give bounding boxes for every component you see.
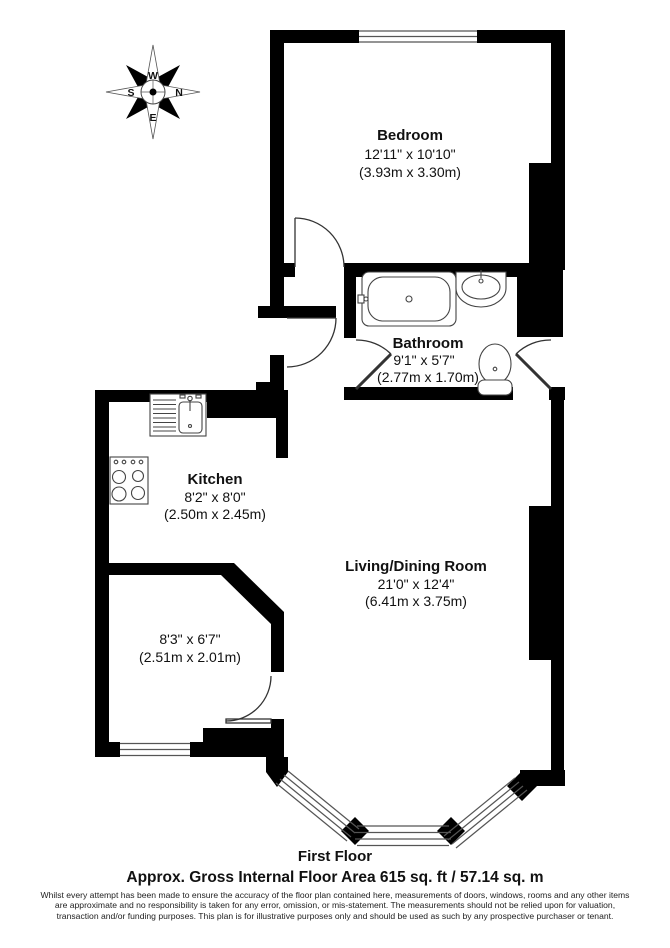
compass-label-west: W xyxy=(148,70,158,82)
chimney-breast xyxy=(529,506,551,660)
svg-text:21'0" x 12'4": 21'0" x 12'4" xyxy=(378,576,455,592)
floorplan-drawing: W N E S Bedroom 12'11" x 10'10" (3.93m x… xyxy=(0,0,670,948)
svg-text:8'2" x 8'0": 8'2" x 8'0" xyxy=(184,489,245,505)
wall xyxy=(95,563,223,575)
bedroom-window xyxy=(359,31,477,42)
wall xyxy=(520,770,565,786)
floor-title: First Floor xyxy=(0,848,670,865)
floorplan-page: W N E S Bedroom 12'11" x 10'10" (3.93m x… xyxy=(0,0,670,948)
svg-text:(2.51m x 2.01m): (2.51m x 2.01m) xyxy=(139,649,241,665)
wall xyxy=(276,390,288,458)
wall xyxy=(551,387,564,772)
kitchen-label: Kitchen 8'2" x 8'0" (2.50m x 2.45m) xyxy=(164,471,266,522)
wall xyxy=(551,30,565,170)
compass-label-south: S xyxy=(127,87,134,99)
bathroom-label: Bathroom 9'1" x 5'7" (2.77m x 1.70m) xyxy=(377,335,479,385)
svg-text:(2.77m x 1.70m): (2.77m x 1.70m) xyxy=(377,369,479,385)
svg-text:9'1" x 5'7": 9'1" x 5'7" xyxy=(393,352,454,368)
svg-text:8'3" x 6'7": 8'3" x 6'7" xyxy=(159,631,220,647)
svg-text:12'11" x 10'10": 12'11" x 10'10" xyxy=(364,146,455,162)
wall xyxy=(258,306,336,318)
wall xyxy=(271,612,284,672)
svg-text:(2.50m x 2.45m): (2.50m x 2.45m) xyxy=(164,506,266,522)
store-window xyxy=(120,744,190,756)
wall xyxy=(203,728,284,742)
svg-text:(3.93m x 3.30m): (3.93m x 3.30m) xyxy=(359,164,461,180)
svg-text:Bedroom: Bedroom xyxy=(377,127,443,144)
store-door xyxy=(226,676,271,723)
living-room-label: Living/Dining Room 21'0" x 12'4" (6.41m … xyxy=(345,558,487,609)
wall xyxy=(207,402,277,418)
svg-text:Kitchen: Kitchen xyxy=(187,471,242,488)
floor-area-summary: Approx. Gross Internal Floor Area 615 sq… xyxy=(0,869,670,887)
bath xyxy=(358,272,456,326)
svg-text:(6.41m x 3.75m): (6.41m x 3.75m) xyxy=(365,593,467,609)
windows xyxy=(120,31,527,848)
bathroom-right-door xyxy=(516,340,551,389)
bay-window-centre xyxy=(355,826,451,846)
chimney-breast xyxy=(529,163,565,270)
bedroom-label: Bedroom 12'11" x 10'10" (3.93m x 3.30m) xyxy=(359,127,461,180)
compass-label-east: E xyxy=(149,112,156,124)
chimney-breast xyxy=(517,268,563,337)
svg-text:Living/Dining Room: Living/Dining Room xyxy=(345,558,487,575)
compass-rose: W N E S xyxy=(106,45,200,139)
disclaimer-text: Whilst every attempt has been made to en… xyxy=(35,890,635,921)
bedroom-door xyxy=(295,218,344,267)
wall xyxy=(344,263,356,338)
store-room-label: 8'3" x 6'7" (2.51m x 2.01m) xyxy=(139,631,241,665)
wall xyxy=(276,263,295,277)
svg-text:Bathroom: Bathroom xyxy=(393,335,464,352)
wall xyxy=(190,742,284,757)
compass-label-north: N xyxy=(175,87,183,99)
wash-basin xyxy=(456,270,506,307)
hallway-door xyxy=(287,318,336,367)
wall xyxy=(95,742,120,757)
toilet xyxy=(478,344,512,395)
walls xyxy=(95,30,565,845)
bay-pier xyxy=(341,817,369,845)
cooker-hob xyxy=(110,457,148,504)
kitchen-sink xyxy=(150,394,206,436)
